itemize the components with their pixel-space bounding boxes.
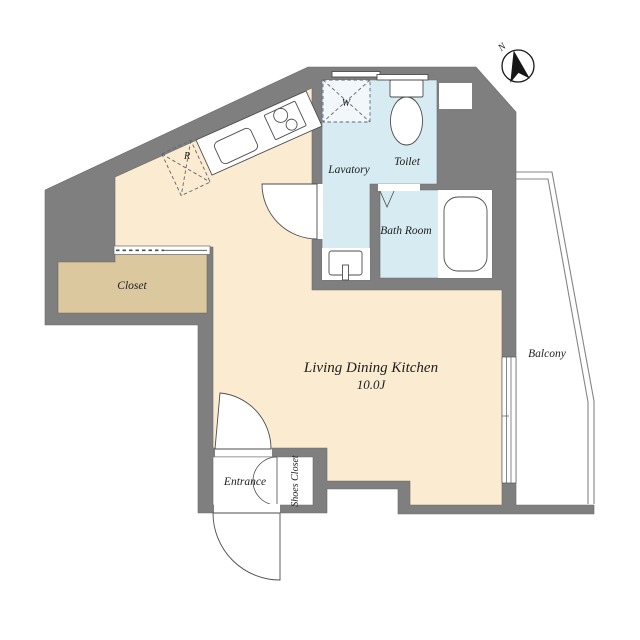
floor-plan-canvas: R W: [0, 0, 640, 640]
closet-door: [114, 246, 210, 255]
bathtub: [444, 197, 487, 271]
label-balcony: Balcony: [528, 348, 567, 360]
bath-doorway: [378, 184, 420, 191]
floor-plan: R W: [0, 0, 640, 640]
balcony-railing-inner: [516, 179, 588, 504]
label-shoes-closet: Shoes Closet: [290, 455, 301, 507]
entrance-inner-doorway: [215, 449, 272, 457]
balcony-railing-outer: [516, 172, 594, 504]
wash-basin: [322, 248, 370, 280]
label-ldk: Living Dining Kitchen: [303, 360, 438, 376]
label-toilet: Toilet: [394, 156, 421, 168]
label-bath-room: Bath Room: [380, 225, 431, 237]
pipe-space: [439, 83, 472, 109]
toilet-fixture: [390, 80, 423, 145]
label-closet: Closet: [117, 280, 147, 292]
window-balcony: [502, 357, 516, 483]
front-doorway: [214, 504, 280, 514]
refrigerator-label: R: [183, 151, 190, 162]
label-ldk-area: 10.0J: [357, 377, 387, 392]
front-door: [213, 513, 280, 580]
label-lavatory: Lavatory: [327, 164, 370, 176]
compass-north-label: N: [495, 40, 509, 54]
label-entrance: Entrance: [223, 476, 266, 488]
compass: N: [495, 40, 534, 83]
